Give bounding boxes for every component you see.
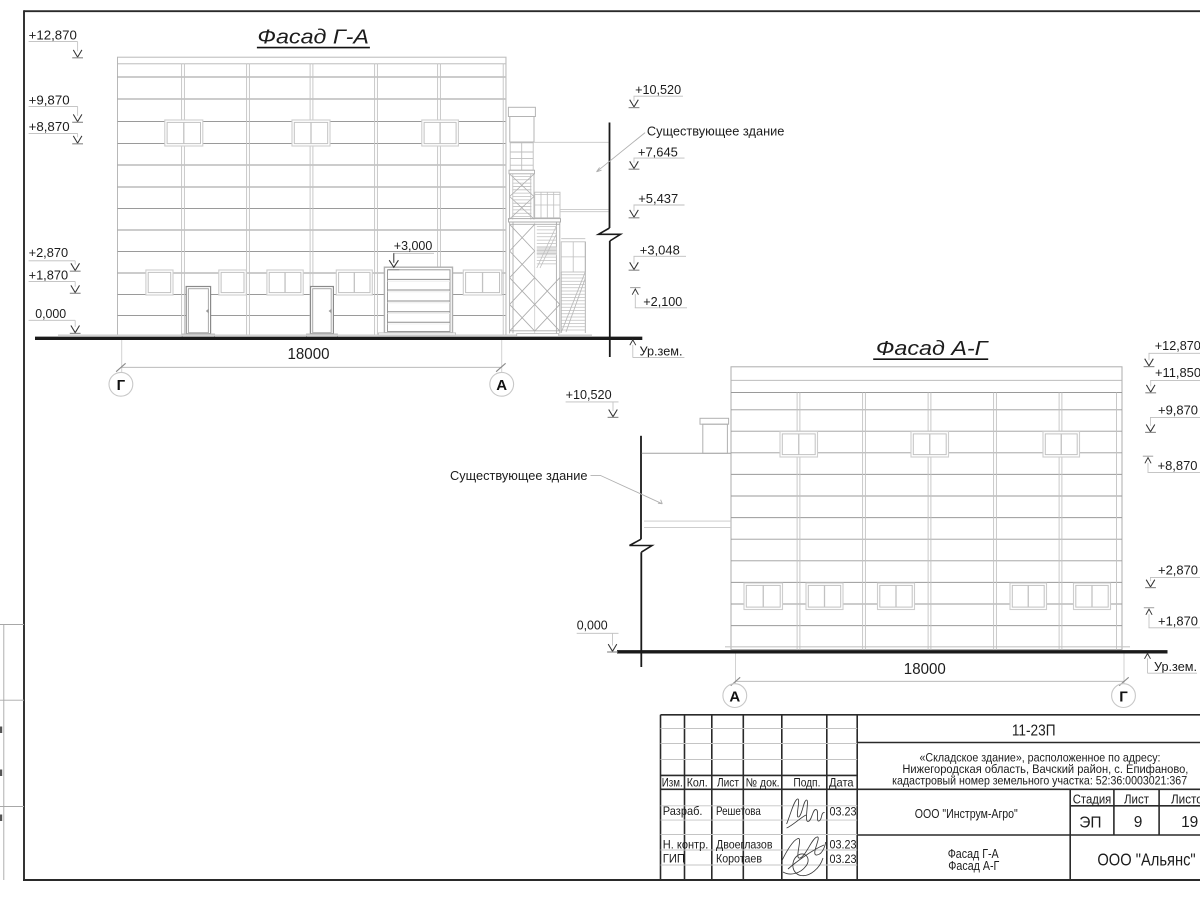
svg-text:11-23П: 11-23П	[1012, 723, 1056, 740]
svg-text:+3,000: +3,000	[394, 239, 433, 253]
svg-text:+8,870: +8,870	[29, 119, 70, 134]
svg-text:+7,645: +7,645	[638, 144, 678, 159]
svg-text:Ур.зем.: Ур.зем.	[640, 343, 683, 358]
svg-text:Фасад Г-А: Фасад Г-А	[257, 25, 369, 48]
svg-text:+1,870: +1,870	[29, 267, 69, 282]
svg-text:Коротаев: Коротаев	[716, 851, 762, 865]
svg-text:0,000: 0,000	[577, 618, 608, 633]
svg-text:9: 9	[1134, 814, 1143, 831]
svg-text:Лист: Лист	[1124, 792, 1149, 806]
svg-text:Листов: Листов	[1171, 792, 1200, 806]
svg-text:Подп.: Подп.	[793, 776, 820, 790]
svg-text:+1,870: +1,870	[1158, 613, 1198, 628]
svg-text:+10,520: +10,520	[635, 82, 681, 97]
svg-text:А: А	[496, 377, 507, 394]
svg-text:0,000: 0,000	[35, 306, 66, 321]
svg-text:+2,870: +2,870	[1158, 562, 1198, 577]
svg-text:кадастровый номер земельного у: кадастровый номер земельного участка: 52…	[892, 773, 1187, 787]
svg-text:03.23: 03.23	[830, 852, 857, 866]
svg-text:Существующее здание: Существующее здание	[450, 468, 588, 483]
svg-text:Ур.зем.: Ур.зем.	[1154, 659, 1197, 674]
svg-text:ООО "Инструм-Агро": ООО "Инструм-Агро"	[915, 807, 1018, 821]
svg-text:ООО "Альянс": ООО "Альянс"	[1097, 849, 1195, 869]
svg-text:№ док.: № док.	[746, 776, 780, 790]
svg-text:+3,048: +3,048	[640, 242, 680, 257]
svg-text:03.23: 03.23	[830, 805, 857, 819]
svg-text:Г: Г	[117, 377, 126, 394]
svg-text:+12,870: +12,870	[1155, 338, 1200, 353]
svg-text:+11,850: +11,850	[1155, 365, 1200, 380]
svg-text:Фасад А-Г: Фасад А-Г	[948, 859, 999, 873]
svg-text:Существующее здание: Существующее здание	[647, 123, 785, 138]
svg-text:Дата: Дата	[829, 776, 854, 790]
svg-text:Н. контр.: Н. контр.	[663, 837, 709, 851]
svg-text:А: А	[729, 688, 740, 705]
svg-text:Разраб.: Разраб.	[663, 804, 703, 818]
svg-text:+2,870: +2,870	[29, 245, 69, 260]
svg-text:+8,870: +8,870	[1158, 458, 1198, 473]
svg-text:+10,520: +10,520	[566, 387, 612, 402]
svg-text:+9,870: +9,870	[29, 93, 70, 108]
svg-text:+9,870: +9,870	[1158, 402, 1198, 417]
svg-text:19: 19	[1181, 814, 1198, 831]
svg-text:18000: 18000	[288, 346, 330, 363]
svg-text:18000: 18000	[904, 661, 946, 678]
svg-text:ГИП: ГИП	[663, 851, 685, 865]
svg-text:Изм.: Изм.	[662, 776, 683, 790]
svg-text:Лист: Лист	[717, 776, 739, 790]
svg-text:Двоеглазов: Двоеглазов	[716, 837, 773, 851]
svg-text:ЭП: ЭП	[1079, 815, 1101, 832]
svg-text:Решетова: Решетова	[716, 804, 761, 818]
svg-text:Г: Г	[1119, 688, 1128, 705]
svg-text:+2,100: +2,100	[643, 294, 682, 309]
svg-text:Кол.: Кол.	[687, 776, 708, 790]
svg-text:+5,437: +5,437	[638, 191, 678, 206]
svg-text:Фасад А-Г: Фасад А-Г	[876, 337, 990, 360]
svg-text:03.23: 03.23	[830, 837, 857, 851]
svg-text:Стадия: Стадия	[1073, 792, 1112, 806]
svg-text:+12,870: +12,870	[29, 27, 77, 42]
